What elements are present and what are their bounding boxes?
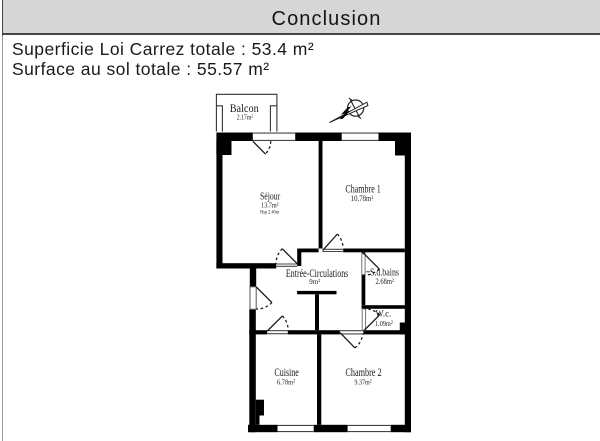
svg-text:Hsp 2.40m: Hsp 2.40m xyxy=(260,210,279,216)
svg-text:2.68m²: 2.68m² xyxy=(376,277,395,286)
svg-text:9.37m²: 9.37m² xyxy=(355,377,373,386)
svg-text:13.7m²: 13.7m² xyxy=(261,201,279,210)
svg-text:6.78m²: 6.78m² xyxy=(277,377,296,386)
svg-text:2.17m²: 2.17m² xyxy=(237,113,254,122)
svg-text:9m²: 9m² xyxy=(309,278,320,286)
svg-text:10.78m²: 10.78m² xyxy=(351,194,374,203)
svg-text:1.09m²: 1.09m² xyxy=(375,319,393,328)
svg-text:W.c.: W.c. xyxy=(375,308,391,318)
